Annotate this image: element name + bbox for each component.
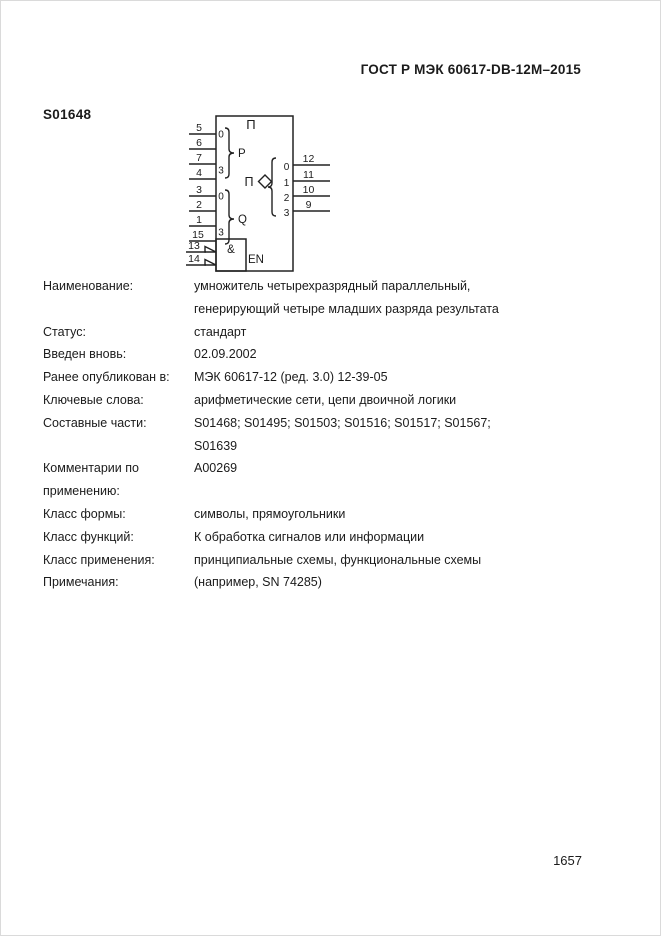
bit-label: 0 [218,192,224,203]
and-gate-label: & [227,244,235,256]
property-value: К обработка сигналов или информации [194,526,588,549]
property-label: Статус: [43,321,194,344]
polarity-indicator-icon [205,260,216,266]
property-value: умножитель четырехразрядный параллельный… [194,275,588,321]
diamond-icon [259,175,272,188]
property-row: Комментарии по применению: A00269 [43,457,588,503]
pin-number: 2 [196,199,202,211]
property-row: Введен вновь: 02.09.2002 [43,343,588,366]
document-page: { "header": { "standard": "ГОСТ Р МЭК 60… [0,0,661,936]
property-label: Введен вновь: [43,343,194,366]
property-label: Класс формы: [43,503,194,526]
pin-number: 13 [188,240,200,252]
property-row: Ключевые слова: арифметические сети, цеп… [43,389,588,412]
property-value: 02.09.2002 [194,343,588,366]
symbol-diagram: Π 5 6 7 4 0 3 P 3 2 1 15 0 3 Q & EN 13 1… [179,104,339,279]
property-label: Ключевые слова: [43,389,194,412]
pin-number: 6 [196,137,202,149]
pin-number: 9 [306,199,312,211]
property-value: арифметические сети, цепи двоичной логик… [194,389,588,412]
p-group-label: P [238,148,246,160]
property-value: символы, прямоугольники [194,503,588,526]
polarity-indicator-icon [205,247,216,253]
property-row: Ранее опубликован в: МЭК 60617-12 (ред. … [43,366,588,389]
property-value: принципиальные схемы, функциональные схе… [194,549,588,572]
property-row: Статус: стандарт [43,321,588,344]
bit-label: 3 [284,208,290,219]
pin-number: 3 [196,184,202,196]
bit-label: 1 [284,178,290,189]
property-label: Класс функций: [43,526,194,549]
bit-label: 3 [218,166,224,177]
property-value: МЭК 60617-12 (ред. 3.0) 12-39-05 [194,366,588,389]
property-row: Класс формы: символы, прямоугольники [43,503,588,526]
pin-number: 1 [196,214,202,226]
property-value: S01468; S01495; S01503; S01516; S01517; … [194,412,588,458]
q-group-brace [225,190,234,244]
page-number: 1657 [553,853,582,868]
property-label: Составные части: [43,412,194,458]
pin-number: 12 [303,153,315,165]
pin-number: 7 [196,152,202,164]
pin-number: 14 [188,253,200,265]
pin-number: 5 [196,122,202,134]
bit-label: 3 [218,228,224,239]
bit-label: 0 [218,130,224,141]
q-group-label: Q [238,214,247,226]
output-group-brace [268,158,276,216]
pin-number: 11 [303,169,314,181]
properties-table: Наименование: умножитель четырехразрядны… [43,275,588,594]
property-label: Примечания: [43,571,194,594]
property-label: Ранее опубликован в: [43,366,194,389]
pin-number: 4 [196,167,202,179]
pin-number: 10 [303,184,315,196]
property-row: Класс функций: К обработка сигналов или … [43,526,588,549]
property-value: стандарт [194,321,588,344]
property-row: Класс применения: принципиальные схемы, … [43,549,588,572]
bit-label: 2 [284,193,290,204]
bit-label: 0 [284,162,290,173]
property-label: Наименование: [43,275,194,321]
output-function-label: Π [244,175,253,189]
multiplier-function-label: Π [246,117,255,132]
property-label: Комментарии по применению: [43,457,194,503]
enable-label: EN [248,254,264,266]
standard-designation: ГОСТ Р МЭК 60617-DB-12M–2015 [361,62,581,77]
property-label: Класс применения: [43,549,194,572]
property-row: Примечания: (например, SN 74285) [43,571,588,594]
property-row: Наименование: умножитель четырехразрядны… [43,275,588,321]
property-row: Составные части: S01468; S01495; S01503;… [43,412,588,458]
p-group-brace [225,128,234,178]
symbol-id: S01648 [43,107,91,122]
property-value: (например, SN 74285) [194,571,588,594]
property-value: A00269 [194,457,588,503]
